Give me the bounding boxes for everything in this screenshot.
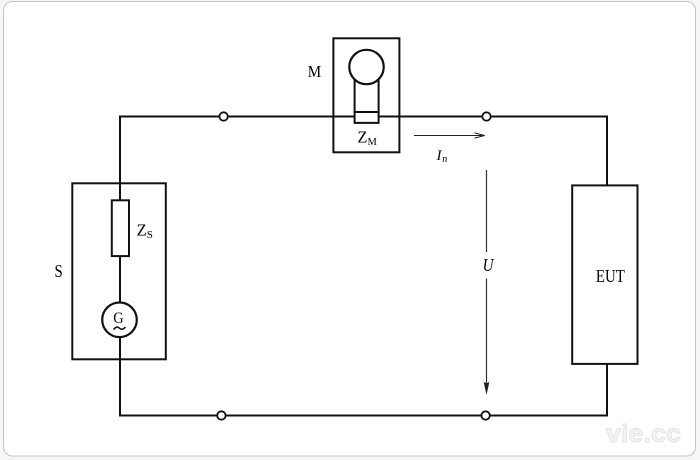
svg-text:U: U	[483, 255, 495, 275]
svg-text:EUT: EUT	[596, 266, 625, 286]
svg-text:vie.cc: vie.cc	[606, 420, 681, 448]
svg-text:G: G	[113, 310, 124, 327]
svg-text:S: S	[55, 261, 63, 281]
svg-text:M: M	[308, 62, 321, 81]
